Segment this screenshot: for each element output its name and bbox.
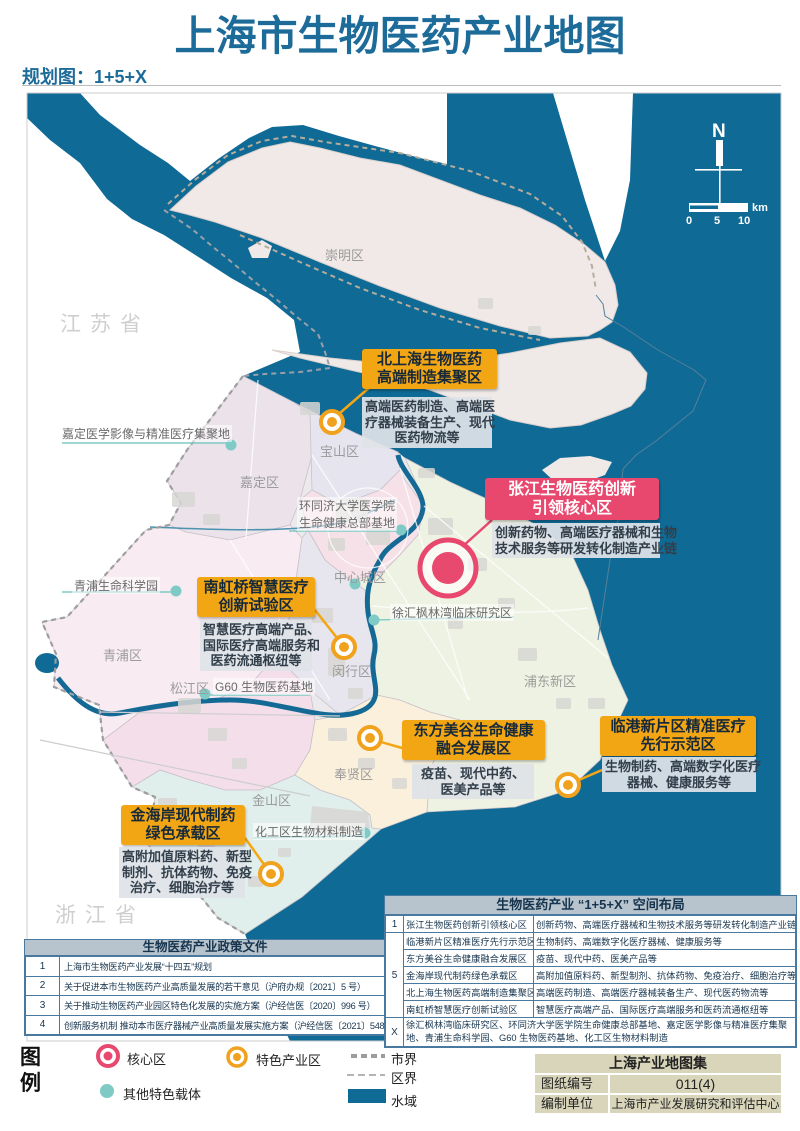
svg-text:10: 10 <box>738 215 750 227</box>
svg-text:0: 0 <box>686 215 692 227</box>
svg-text:N: N <box>712 121 726 142</box>
svg-text:5: 5 <box>714 215 720 227</box>
svg-text:km: km <box>752 202 768 214</box>
